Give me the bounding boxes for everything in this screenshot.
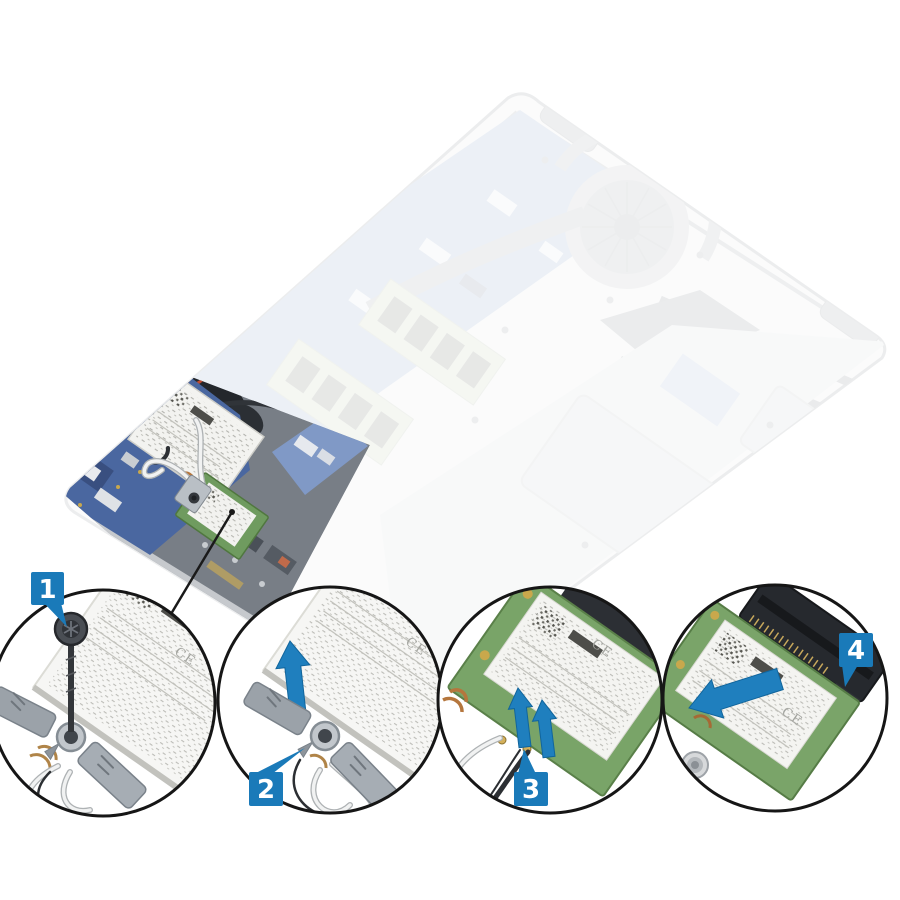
step-3-number: 3 [522,775,540,805]
step-4-number: 4 [847,636,865,666]
wlan-removal-illustration: CE [0,0,900,900]
step-1-number: 1 [38,575,56,605]
step-4-callout: CE 4 [644,572,892,811]
figure-canvas: CE [0,0,900,900]
step-2-number: 2 [257,775,275,805]
